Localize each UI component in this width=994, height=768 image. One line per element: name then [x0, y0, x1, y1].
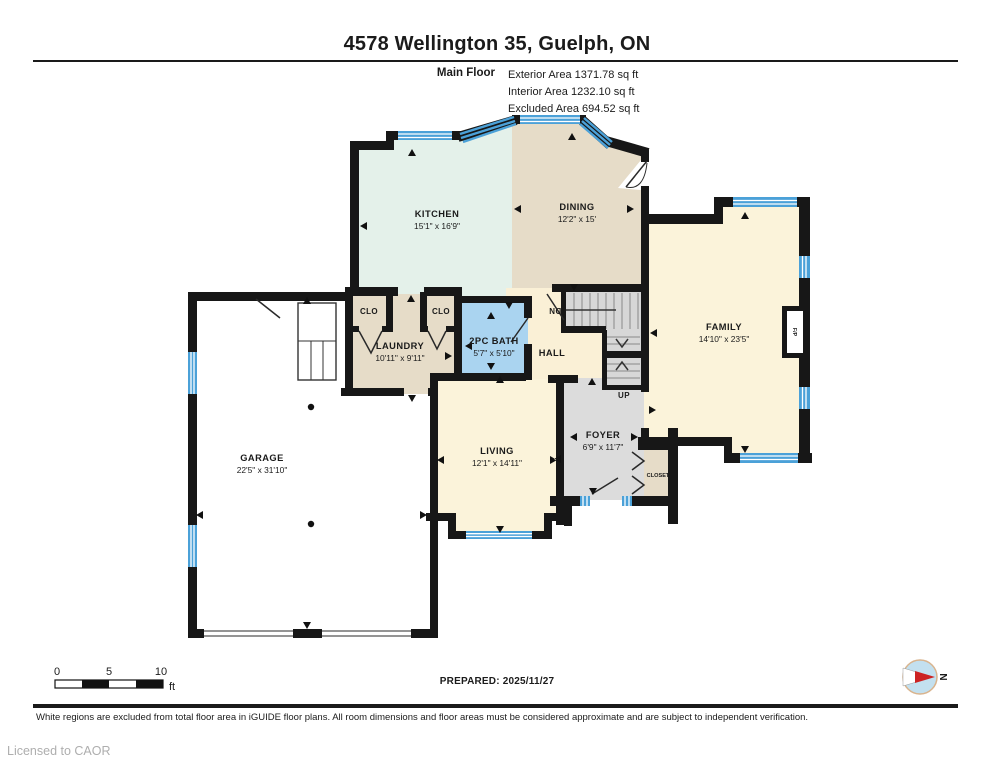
- laundry-dims: 10'11" x 9'11": [375, 353, 424, 363]
- bath-dims: 5'7" x 5'10": [473, 348, 514, 358]
- dining-top-window: [520, 115, 580, 124]
- dining-label: DINING: [559, 202, 594, 212]
- fireplace: F/P: [782, 306, 808, 358]
- prepared-date: PREPARED: 2025/11/27: [0, 676, 994, 687]
- garage-dims: 22'5" x 31'10": [237, 465, 288, 475]
- family-top-window: [733, 197, 797, 207]
- kitchen-label: KITCHEN: [415, 209, 459, 219]
- living-label: LIVING: [480, 446, 514, 456]
- garage-window-1: [188, 352, 197, 394]
- clo-right-label: CLO: [432, 307, 450, 316]
- family-right-window-2: [799, 387, 810, 409]
- family-label: FAMILY: [706, 322, 742, 332]
- floor-plan-drawing: F/P KITCHEN 15'1" x 16'9" DINING 12'2" x…: [0, 0, 994, 768]
- foyer-sidelight-right: [622, 496, 632, 506]
- footer-divider: [33, 704, 958, 708]
- license-text: Licensed to CAOR: [7, 744, 111, 758]
- family-dims: 14'10" x 23'5": [699, 334, 750, 344]
- stair-main-run-area: [564, 292, 641, 330]
- kitchen-window: [398, 131, 452, 140]
- foyer-dims: 6'9" x 11'7": [583, 442, 624, 452]
- dining-dims: 12'2" x 15': [558, 214, 597, 224]
- garage-post-2: [308, 521, 314, 527]
- disclaimer-text: White regions are excluded from total fl…: [36, 712, 946, 723]
- family-bottom-window: [740, 453, 798, 463]
- bath-label: 2PC BATH: [469, 336, 518, 346]
- hall-label: HALL: [539, 348, 566, 358]
- foyer-sidelight-left: [580, 496, 590, 506]
- garage-window-2: [188, 525, 197, 567]
- closet-area: [644, 446, 672, 498]
- garage-label: GARAGE: [240, 453, 284, 463]
- stair-column-area: [604, 330, 641, 390]
- living-dims: 12'1" x 14'11": [472, 458, 522, 468]
- family-right-window-1: [799, 256, 810, 278]
- clo-left-label: CLO: [360, 307, 378, 316]
- kitchen-dims: 15'1" x 16'9": [414, 221, 460, 231]
- floor-plan-page: 4578 Wellington 35, Guelph, ON Main Floo…: [0, 0, 994, 768]
- living-bay-window: [466, 531, 532, 539]
- laundry-label: LAUNDRY: [376, 341, 425, 351]
- living-room-area: [434, 379, 560, 535]
- garage-post-1: [308, 404, 314, 410]
- closet-label: CLOSET: [647, 473, 670, 479]
- foyer-label: FOYER: [586, 430, 620, 440]
- stair-up-label: UP: [618, 391, 630, 400]
- stair-dn-label: DN: [549, 306, 561, 315]
- fireplace-label: F/P: [791, 328, 797, 337]
